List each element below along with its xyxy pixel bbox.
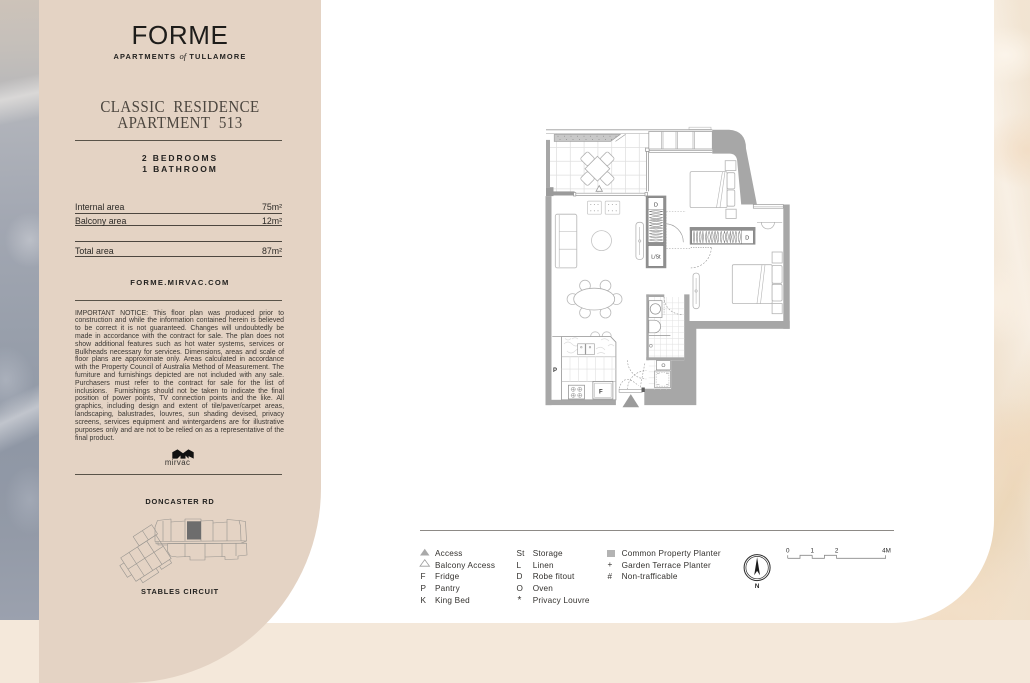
svg-text:P: P [553, 368, 557, 374]
svg-text:1: 1 [810, 548, 814, 555]
svg-text:2: 2 [835, 548, 839, 555]
svg-text:mirvac: mirvac [164, 458, 189, 467]
svg-text:0: 0 [786, 548, 790, 555]
svg-text:D: D [654, 202, 658, 208]
svg-text:D: D [745, 235, 749, 241]
svg-text:N: N [755, 583, 760, 590]
svg-text:4M: 4M [882, 548, 891, 555]
svg-text:F: F [599, 390, 603, 396]
svg-text:L/St: L/St [651, 255, 661, 261]
